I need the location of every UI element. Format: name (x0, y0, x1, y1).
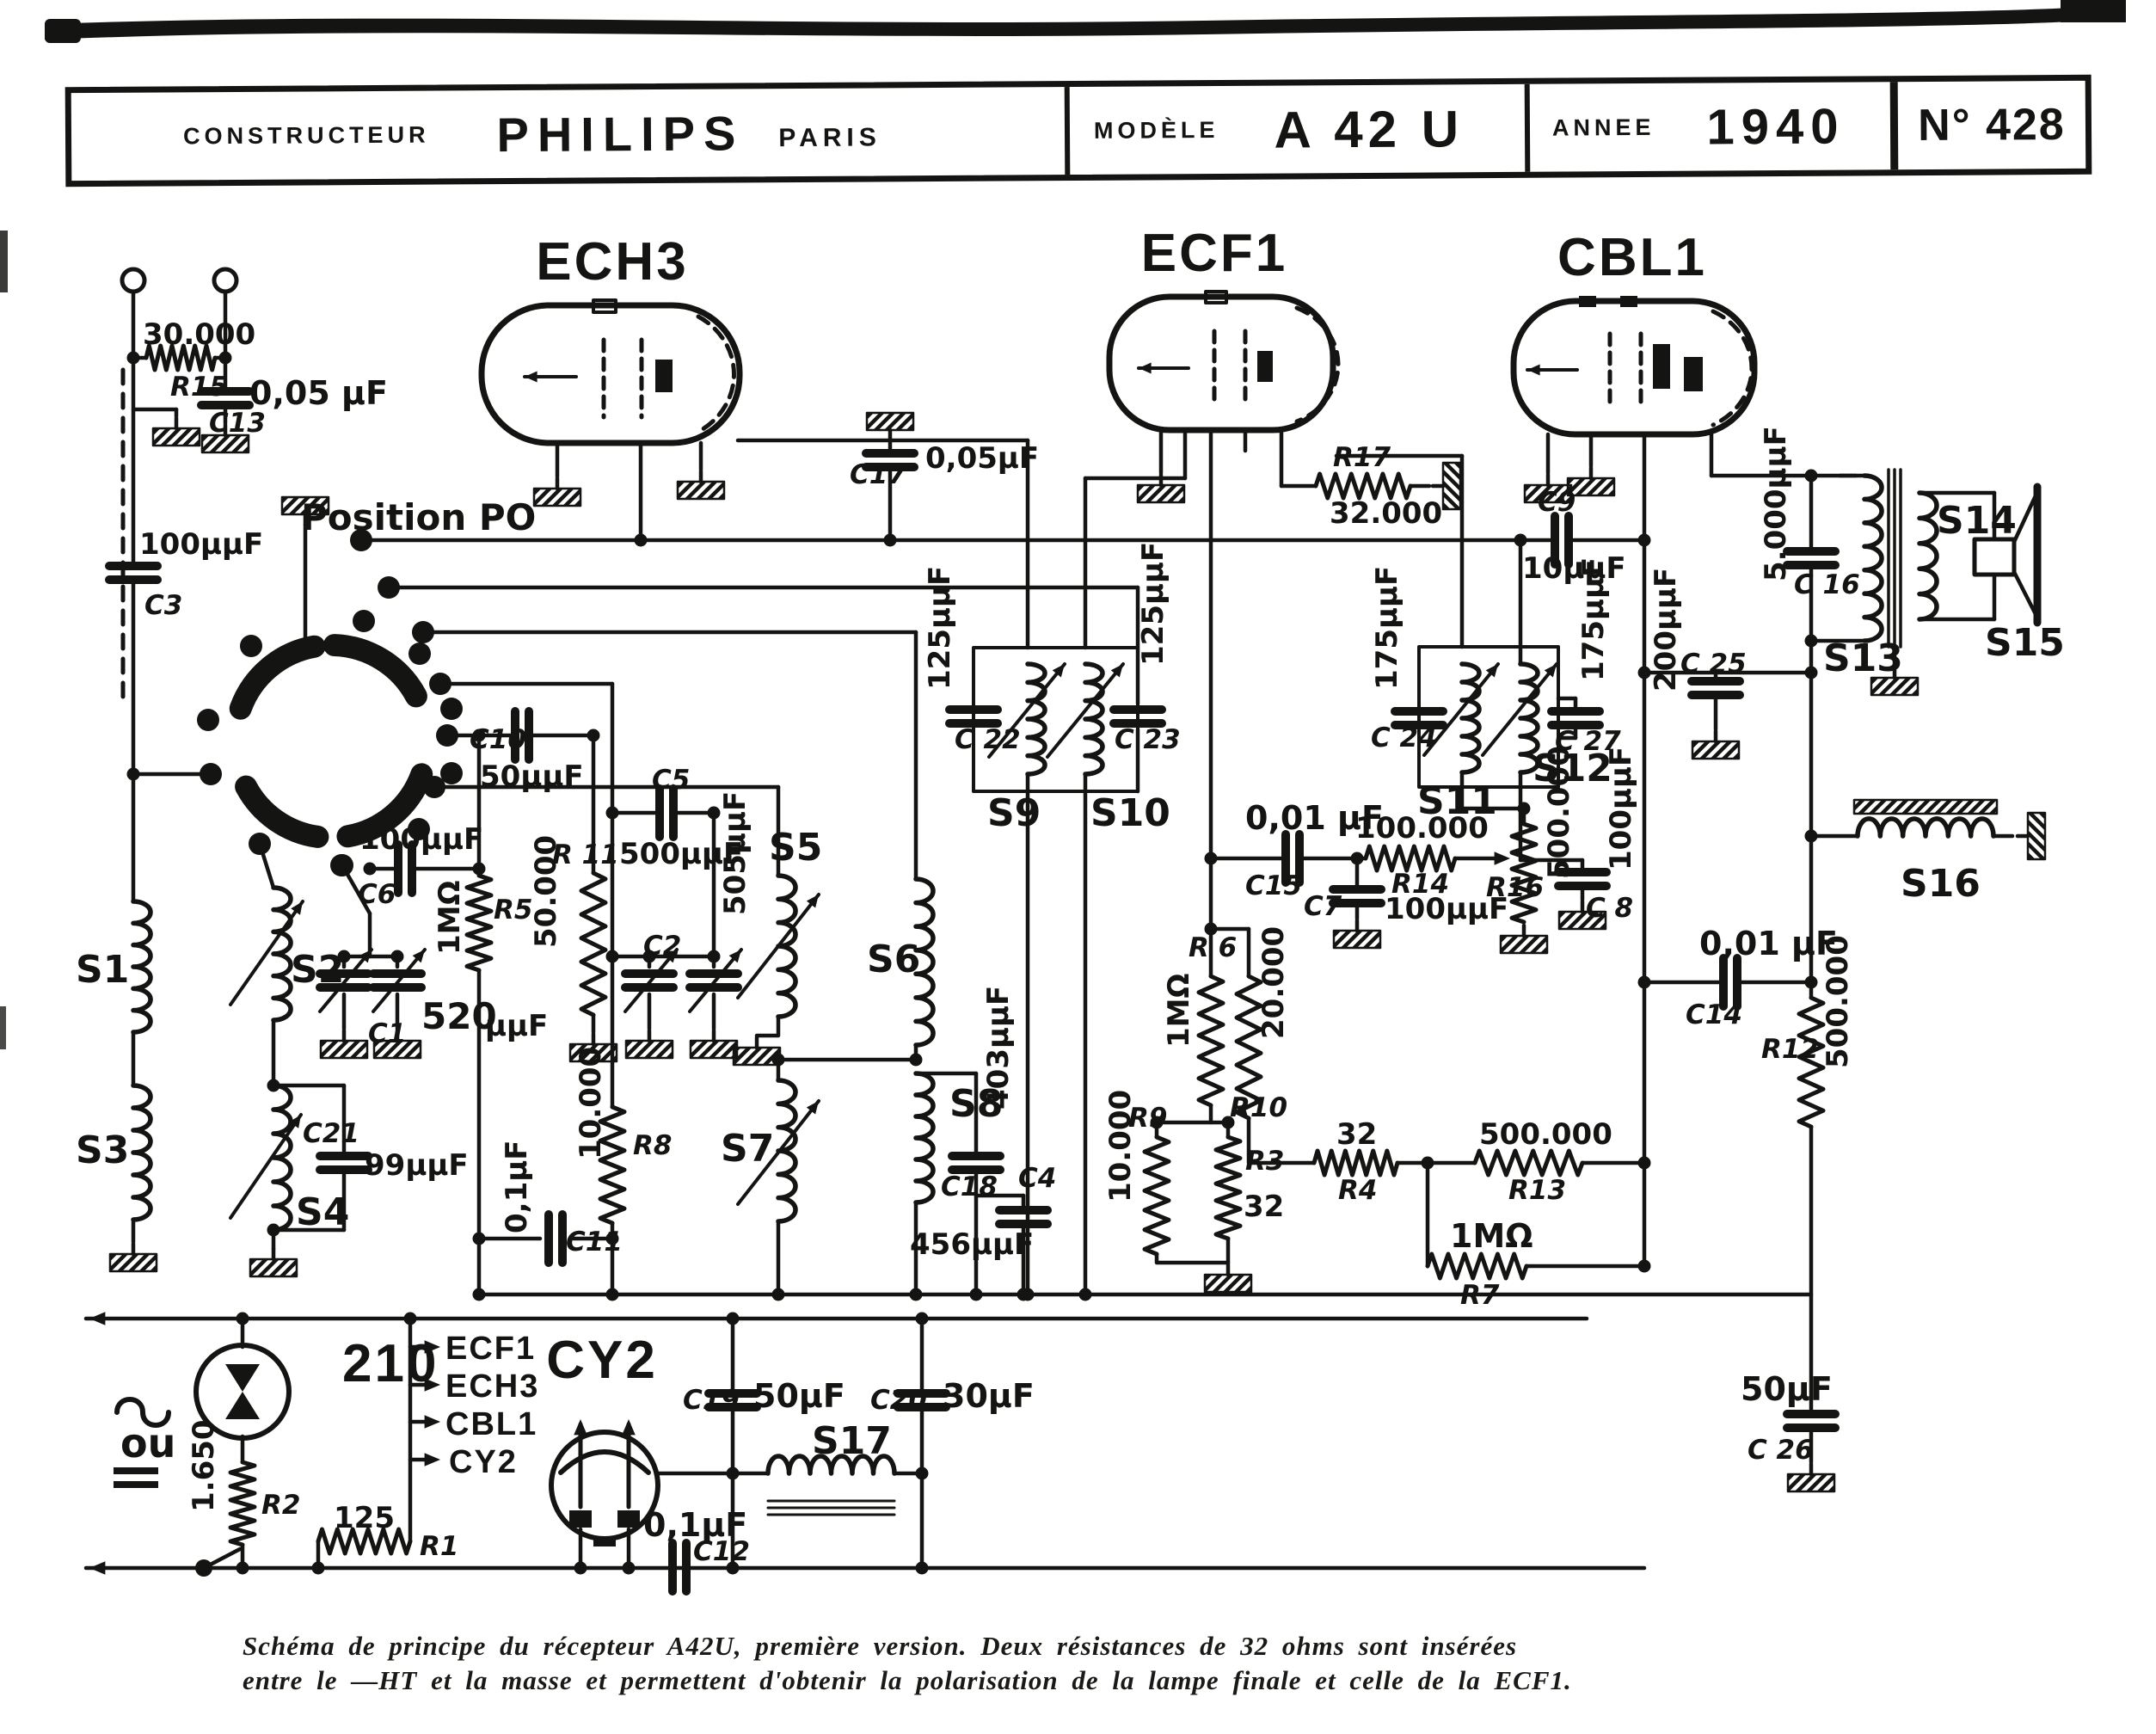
junction-dot (127, 768, 140, 781)
switch-contact-dot (197, 709, 219, 731)
resistor-symbol (581, 873, 605, 1015)
ground-symbol (250, 1249, 297, 1276)
junction-dot (606, 950, 619, 963)
schematic-label: S15 (1985, 621, 2065, 665)
coil-symbol (1864, 476, 1882, 641)
schematic-label: 125µµF (923, 566, 957, 690)
resistor-symbol (467, 876, 491, 970)
schematic-label: R3 (1245, 1146, 1284, 1177)
schematic-label: C11 (566, 1227, 623, 1257)
schematic-label: 10.000 (574, 1047, 608, 1159)
schematic-label: CBL1 (1557, 228, 1707, 287)
schematic-label: 125 (334, 1501, 395, 1535)
resistor-symbol (1475, 1151, 1582, 1175)
switch-contact-dot (412, 621, 434, 643)
wire (757, 1017, 778, 1036)
lamp-triangle (225, 1364, 260, 1392)
schematic-label: C 23 (1115, 724, 1181, 755)
rotary-switch-arc (335, 645, 416, 696)
junction-dot (236, 1562, 249, 1575)
header-numero-section: N° 428 (1890, 81, 2086, 169)
junction-dot (312, 1562, 325, 1575)
schematic-label: R16 (1486, 872, 1544, 903)
schematic-canvas: ECH3ECF1CBL1CY2210ECF1ECH3CBL1CY2S1S2S3S… (0, 0, 2156, 1734)
junction-dot (391, 950, 404, 963)
schematic-label: 1MΩ (433, 881, 467, 955)
schematic-label: µµF (485, 1009, 548, 1043)
junction-dot (1805, 635, 1818, 648)
schematic-label: 1MΩ (1450, 1217, 1533, 1255)
antenna-terminal (214, 269, 236, 292)
tube-ecf1 (1109, 297, 1333, 430)
ground-symbol (1692, 731, 1739, 759)
ground-symbol (1334, 920, 1380, 948)
schematic-label: R 11 (552, 839, 619, 870)
junction-dot (1079, 1288, 1092, 1301)
resistor-symbol (1145, 1137, 1169, 1254)
annee-label: ANNEE (1552, 114, 1655, 141)
tube-plate (1257, 351, 1273, 382)
ground-symbol (678, 471, 724, 499)
schematic-label: 30.000 (143, 317, 255, 352)
junction-dot (635, 534, 648, 547)
coil-symbol (133, 901, 150, 1032)
header-annee-section: ANNEE 1940 (1525, 82, 1891, 172)
modele-value: A 42 U (1274, 99, 1464, 159)
arrow-head (574, 1419, 587, 1435)
schematic-label: R2 (261, 1490, 300, 1521)
schematic-label: R17 (1333, 442, 1391, 473)
header-plate: CONSTRUCTEUR PHILIPS PARIS MODÈLE A 42 U… (65, 75, 2092, 187)
schematic-label: C17 (850, 459, 906, 490)
schematic-label: 100µµF (359, 822, 483, 857)
schematic-label: 20.000 (1256, 926, 1291, 1039)
junction-dot (473, 1288, 486, 1301)
junction-dot (1638, 1157, 1651, 1170)
switch-contact-dot (249, 833, 271, 855)
schematic-label: 50µF (1741, 1370, 1833, 1408)
schematic-label: R15 (170, 372, 228, 403)
resistor-symbol (1366, 846, 1455, 870)
junction-dot (916, 1467, 929, 1480)
schematic-label: 50µF (753, 1377, 845, 1415)
schematic-label: ECH3 (445, 1368, 539, 1405)
schematic-label: C10 (470, 724, 526, 755)
wire (1157, 1254, 1228, 1263)
schematic-label: S3 (76, 1128, 129, 1172)
schematic-label: C19 (683, 1385, 740, 1416)
switch-contact-dot (429, 673, 451, 695)
resistor-symbol (1216, 1137, 1240, 1239)
resistor-symbol (1199, 976, 1223, 1105)
caption: Schéma de principe du récepteur A42U, pr… (243, 1629, 1825, 1698)
junction-dot (1638, 1260, 1651, 1273)
junction-dot (727, 1313, 740, 1325)
coil-symbol (133, 1085, 150, 1220)
junction-dot (623, 1562, 636, 1575)
coil-symbol (273, 1085, 291, 1230)
junction-dot (473, 863, 486, 876)
junction-dot (884, 534, 897, 547)
schematic-label: C 22 (955, 724, 1021, 755)
arrow-head (89, 1561, 105, 1575)
arrow-head (525, 371, 537, 382)
schematic-label: 50µµF (480, 759, 584, 794)
arrow-head (425, 1453, 440, 1467)
ground-symbol (626, 1030, 673, 1058)
schematic-label: C1 (368, 1018, 406, 1049)
schematic-label: S1 (76, 948, 129, 992)
schematic-label: S2 (291, 948, 344, 992)
speaker-coil-box (1975, 539, 2014, 575)
rotary-switch-arc (246, 787, 317, 837)
junction-dot (1805, 830, 1818, 843)
schematic-label: 0,01 µF (1699, 925, 1838, 962)
schematic-label: C13 (209, 408, 266, 439)
junction-dot (1022, 1288, 1035, 1301)
resistor-symbol (1428, 1254, 1526, 1278)
cy2-anode (617, 1510, 640, 1528)
junction-dot (127, 352, 140, 365)
header-constructeur-section: CONSTRUCTEUR PHILIPS PARIS (71, 87, 1066, 181)
schematic-label: R7 (1460, 1280, 1500, 1311)
schematic-label: C4 (1018, 1163, 1056, 1194)
ground-symbol (1501, 925, 1547, 953)
tube-cbl1 (1514, 301, 1754, 434)
junction-dot (772, 1054, 785, 1067)
resistor-symbol (1314, 1151, 1397, 1175)
tube-top-cap (1620, 296, 1637, 307)
ground-symbol (1788, 1464, 1834, 1491)
ground-symbol (110, 1244, 157, 1271)
schematic-label: C21 (303, 1118, 359, 1149)
switch-contact-dot (200, 763, 222, 785)
ground-symbol (2018, 813, 2045, 859)
junction-dot (916, 1562, 929, 1575)
schematic-label: ECF1 (445, 1331, 536, 1367)
tube-top-cap (1579, 296, 1596, 307)
tube-cy2 (551, 1432, 658, 1539)
schematic-label: ECH3 (536, 232, 688, 292)
junction-dot (574, 1562, 587, 1575)
schematic-label: C12 (693, 1536, 750, 1567)
junction-dot (404, 1313, 417, 1325)
schematic-label: S13 (1823, 636, 1903, 680)
junction-dot (910, 1288, 923, 1301)
junction-dot (970, 1288, 983, 1301)
coil-symbol (1085, 664, 1103, 774)
schematic-label: CY2 (546, 1331, 658, 1390)
schematic-label: S4 (296, 1190, 349, 1234)
schematic-label: C 24 (1371, 722, 1437, 753)
schematic-label: 0,1µF (500, 1141, 534, 1233)
schematic-label: C18 (941, 1171, 998, 1202)
junction-dot (1518, 802, 1531, 815)
junction-dot (606, 807, 619, 820)
junction-dot (916, 1313, 929, 1325)
junction-dot (727, 1467, 740, 1480)
schematic-label: 1.650 (187, 1419, 221, 1512)
schematic-label: 100µµF (1604, 747, 1638, 870)
junction-dot (1422, 1157, 1434, 1170)
junction-dot (1351, 852, 1364, 865)
schematic-label: R9 (1128, 1103, 1167, 1134)
schematic-label: C7 (1304, 891, 1342, 922)
schematic-label: ECF1 (1141, 224, 1287, 283)
junction-dot (1638, 534, 1651, 547)
ground-symbol (1205, 1264, 1251, 1292)
arrow-head (1139, 362, 1152, 373)
junction-dot (1514, 534, 1527, 547)
schematic-label: C6 (358, 879, 396, 910)
resistor-symbol (1316, 474, 1410, 498)
tube-ech3 (482, 305, 740, 443)
schematic-label: 99µµF (365, 1148, 469, 1183)
junction-dot (473, 1233, 486, 1245)
schematic-label: C5 (652, 765, 690, 796)
junction-dot (772, 1288, 785, 1301)
schematic-label: C14 (1686, 999, 1742, 1030)
junction-dot (267, 1224, 280, 1237)
arrow-head (1495, 852, 1510, 865)
tube-plate (1653, 344, 1670, 389)
schematic-label: C15 (1245, 870, 1302, 901)
schematic-label: 5.000µµF (1759, 426, 1793, 581)
brand-name: PHILIPS (496, 105, 744, 163)
variable-arrow (1483, 664, 1557, 755)
coil-symbol (1920, 493, 1937, 619)
schematic-label: R8 (633, 1130, 672, 1161)
circuit: ECH3ECF1CBL1CY2210ECF1ECH3CBL1CY2S1S2S3S… (76, 224, 2065, 1591)
schematic-label: 30µF (943, 1377, 1035, 1415)
header-modele-section: MODÈLE A 42 U (1065, 84, 1526, 175)
schematic-label: R5 (494, 895, 532, 925)
coil-symbol (1028, 664, 1045, 774)
schematic-label: R12 (1761, 1034, 1819, 1065)
coil-symbol (273, 888, 291, 1020)
arrow-head (1527, 364, 1540, 375)
junction-dot (236, 1313, 249, 1325)
lamp-triangle (225, 1392, 260, 1419)
schematic-label: 32.000 (1330, 496, 1442, 531)
switch-contact-dot (331, 854, 353, 876)
schematic-label: S9 (987, 791, 1041, 835)
tube-plate (655, 360, 673, 392)
schematic-label: C 27 (1555, 726, 1621, 757)
schematic-label: S16 (1901, 862, 1981, 906)
schematic-label: 456µµF (910, 1227, 1034, 1262)
junction-dot (1805, 470, 1818, 483)
coil-symbol (1462, 664, 1479, 772)
ground-symbol (534, 478, 580, 506)
switch-contact-dot (440, 698, 463, 720)
scanned-schematic-page: { "page": {"ink": "#141412", "background… (0, 0, 2156, 1734)
schematic-label: R 6 (1189, 932, 1237, 963)
caption-line-2: entre le —HT et la masse et permettent d… (243, 1663, 1825, 1698)
junction-dot (708, 950, 721, 963)
schematic-label: S14 (1937, 499, 2017, 543)
cy2-anode (569, 1510, 592, 1528)
antenna-terminal (122, 269, 144, 292)
schematic-label: C 8 (1586, 893, 1633, 924)
schematic-label: 200µµF (1649, 568, 1683, 692)
junction-dot (1805, 976, 1818, 989)
coil-symbol (916, 1073, 933, 1202)
constructeur-label: CONSTRUCTEUR (183, 121, 430, 150)
switch-contact-dot (408, 643, 431, 665)
arrow-head (89, 1312, 105, 1325)
schematic-label: 403µµF (981, 986, 1016, 1110)
schematic-label: R4 (1338, 1175, 1377, 1206)
schematic-label: 32 (1244, 1190, 1284, 1224)
schematic-label: 32 (1336, 1117, 1377, 1152)
schematic-label: S5 (769, 826, 822, 870)
ground-symbol (691, 1030, 737, 1058)
schematic-label: R14 (1391, 869, 1449, 900)
schematic-label: R1 (420, 1531, 458, 1562)
dc-symbol (114, 1467, 158, 1474)
switch-pivot-dot (195, 1559, 212, 1577)
schematic-label: S17 (812, 1419, 892, 1463)
resistor-symbol (230, 1462, 255, 1545)
schematic-label: 0,01 µF (1245, 799, 1384, 837)
junction-dot (267, 1079, 280, 1092)
arrow-head (425, 1415, 440, 1429)
junction-dot (606, 1288, 619, 1301)
switch-contact-dot (240, 635, 262, 657)
junction-dot (1805, 667, 1818, 679)
caption-line-1: Schéma de principe du récepteur A42U, pr… (243, 1629, 1825, 1663)
schematic-label: C2 (643, 931, 681, 962)
schematic-label: 505µµF (718, 791, 752, 915)
schematic-label: C 16 (1794, 569, 1860, 600)
schematic-label: CBL1 (445, 1406, 537, 1442)
junction-dot (1638, 976, 1651, 989)
core-bar (1854, 800, 1997, 814)
brand-city: PARIS (778, 123, 881, 153)
junction-dot (1205, 852, 1218, 865)
schematic-label: R10 (1230, 1092, 1287, 1123)
coil-symbol (778, 876, 795, 1017)
schematic-label: 0,05µF (925, 441, 1039, 476)
schematic-label: 210 (342, 1334, 439, 1393)
schematic-label: S7 (721, 1127, 774, 1171)
junction-dot (910, 1054, 923, 1067)
schematic-label: 500.000 (1821, 935, 1855, 1068)
ground-symbol (867, 413, 913, 440)
schematic-label: S10 (1090, 791, 1170, 835)
schematic-label: 500.000 (1542, 746, 1576, 879)
schematic-label: R13 (1508, 1175, 1566, 1206)
schematic-label: C3 (144, 590, 182, 621)
schematic-label: S6 (867, 938, 920, 981)
schematic-label: Position PO (301, 496, 536, 538)
arrow-head (622, 1419, 636, 1435)
junction-dot (587, 729, 600, 742)
annee-value: 1940 (1706, 97, 1845, 156)
schematic-label: 0,05 µF (249, 374, 388, 412)
cy2-bar (593, 1540, 616, 1546)
coil-symbol (1858, 819, 1993, 836)
schematic-label: 125µµF (1136, 542, 1170, 666)
switch-contact-dot (378, 576, 400, 599)
switch-contact-dot (436, 724, 458, 747)
modele-label: MODÈLE (1094, 117, 1219, 144)
junction-dot (364, 863, 377, 876)
schematic-label: 500.000 (1479, 1117, 1612, 1152)
schematic-label: CY2 (449, 1444, 518, 1480)
switch-contact-dot (353, 610, 375, 632)
schematic-label: C 25 (1680, 649, 1747, 679)
ground-symbol (321, 1030, 367, 1058)
junction-dot (219, 352, 232, 365)
schematic-label: C 26 (1748, 1435, 1814, 1466)
schematic-label: 1MΩ (1162, 974, 1196, 1048)
cy2-filament (561, 1452, 648, 1473)
schematic-label: ou (120, 1420, 175, 1467)
dc-symbol (114, 1481, 158, 1488)
numero-value: N° 428 (1918, 99, 2066, 151)
schematic-label: 175µµF (1370, 566, 1404, 690)
schematic-label: C20 (870, 1385, 927, 1416)
schematic-label: 100µµF (139, 527, 263, 562)
schematic-label: 10µµF (1522, 551, 1626, 586)
ground-symbol (153, 418, 200, 446)
schematic-label: C9 (1538, 487, 1576, 518)
tube-beam-plate (1684, 357, 1703, 391)
